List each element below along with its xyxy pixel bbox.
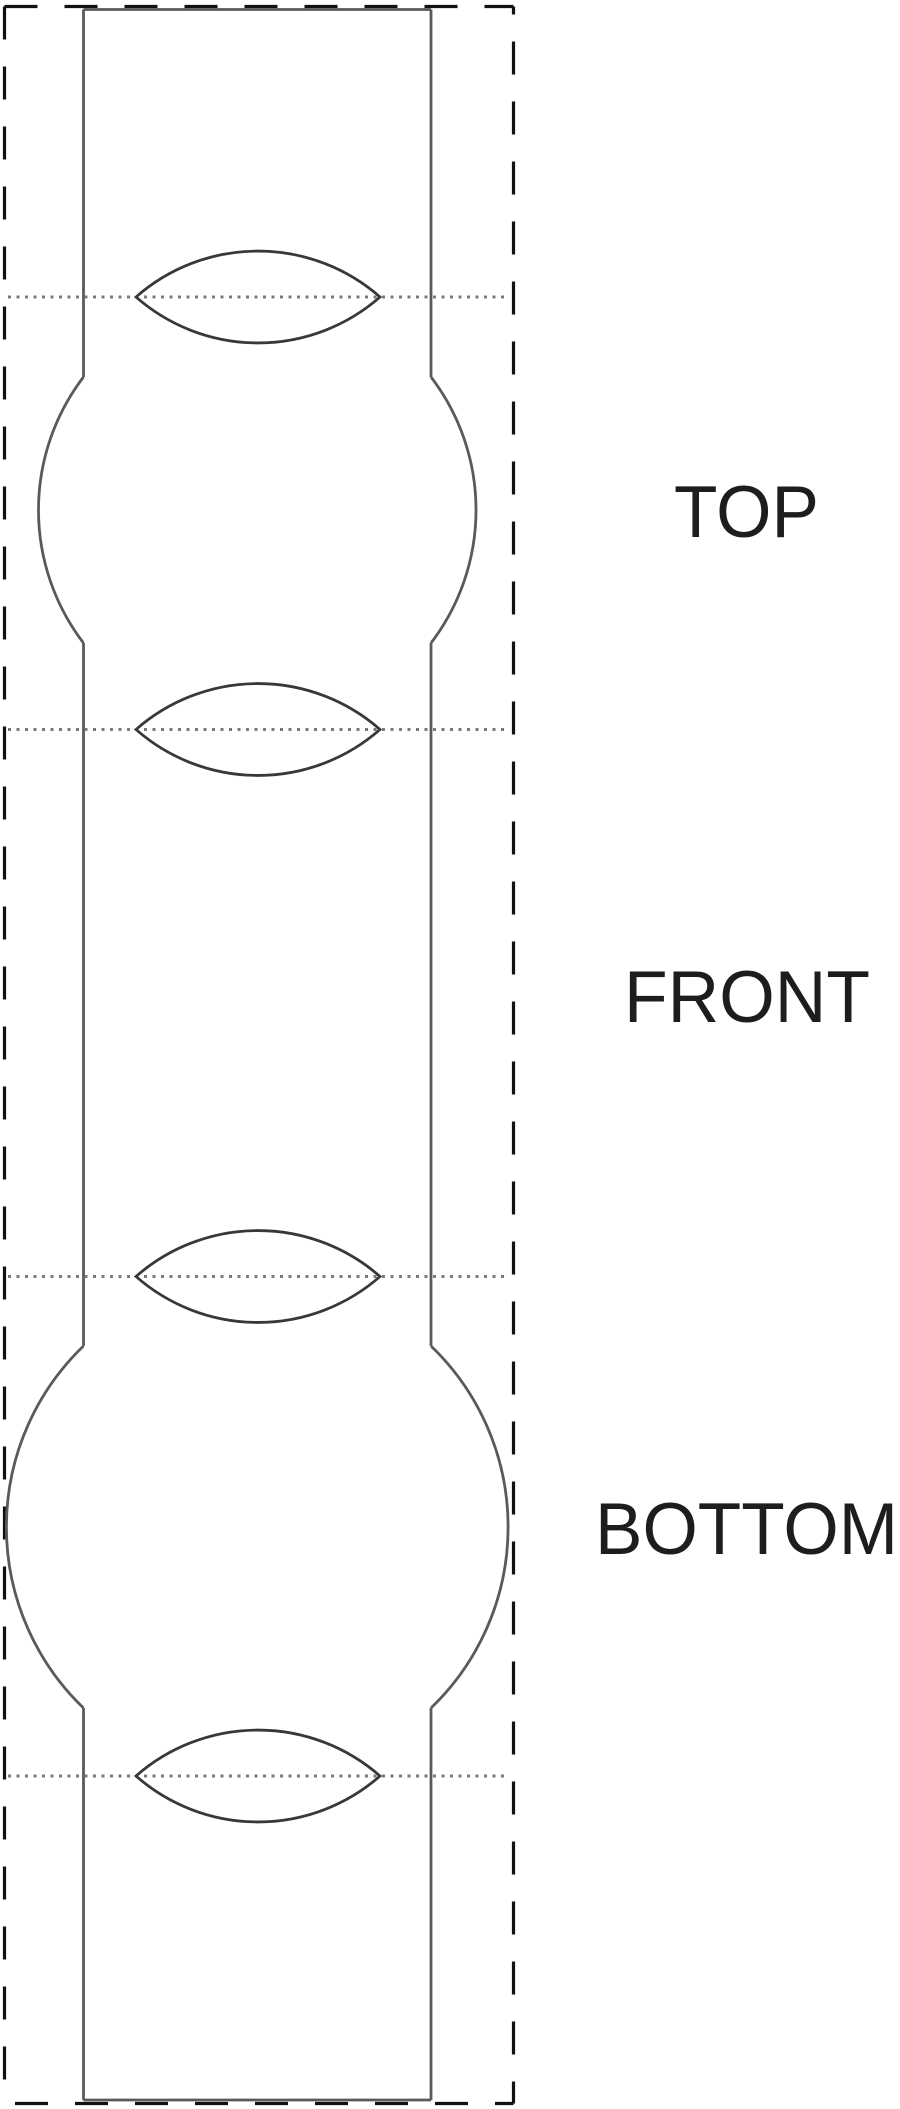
svg-text:BOTTOM: BOTTOM bbox=[595, 1489, 898, 1570]
svg-text:FRONT: FRONT bbox=[624, 957, 870, 1038]
svg-text:TOP: TOP bbox=[674, 472, 819, 553]
